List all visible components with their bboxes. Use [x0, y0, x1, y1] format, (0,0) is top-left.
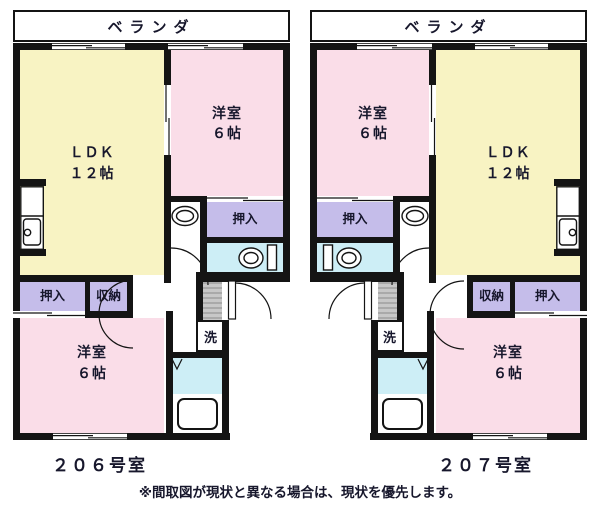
storage-label: 収納 [96, 287, 121, 305]
room-label: 洋室 [77, 342, 107, 362]
toilet-room-207 [317, 243, 393, 272]
room-ldk-206: ＬＤＫ １２帖 [20, 50, 164, 275]
closet-label: 押入 [232, 210, 257, 228]
wall [397, 282, 404, 322]
wall [13, 43, 290, 50]
room-bedroom-top-207: 洋室 ６帖 [317, 50, 429, 196]
room-size-label: ６帖 [358, 123, 388, 143]
wall [310, 272, 404, 282]
closet-shuno-206: 収納 [90, 282, 127, 311]
wall [13, 433, 230, 440]
washroom-206 [171, 202, 200, 283]
wall [554, 249, 580, 256]
room-size-label: ６帖 [212, 123, 242, 143]
wall [85, 311, 133, 318]
room-label: ＬＤＫ [70, 142, 115, 162]
wall [283, 43, 290, 282]
room-label: 洋室 [493, 342, 523, 362]
entrance-door [229, 281, 372, 319]
wall [85, 282, 90, 311]
closet-oshiire-bottom-206: 押入 [20, 282, 85, 311]
laundry-box-207: 洗 [375, 320, 404, 352]
disclaimer-caption: ※間取図が現状と異なる場合は、現状を優先します。 [0, 481, 600, 501]
wall [429, 50, 436, 85]
unit-label-207: ２０７号室 [438, 451, 533, 476]
laundry-label: 洗 [383, 327, 396, 346]
wall [20, 249, 46, 256]
wall [310, 43, 317, 282]
bathtub-icon [177, 398, 218, 430]
toilet-room-206 [207, 243, 283, 272]
wall [13, 43, 20, 440]
laundry-box-206: 洗 [196, 320, 225, 352]
storage-label: 収納 [479, 287, 504, 305]
wall [580, 43, 587, 440]
floor-plan: ベランダ ＬＤＫ １２帖 洋室 ６帖 押入 押入 収納 洋室 ６帖 洗 [0, 0, 600, 506]
genkan-207 [378, 282, 397, 320]
genkan-206 [203, 282, 222, 320]
room-bedroom-bottom-206: 洋室 ６帖 [20, 318, 164, 433]
closet-label: 押入 [342, 210, 367, 228]
laundry-label: 洗 [204, 327, 217, 346]
closet-label: 押入 [40, 287, 65, 305]
closet-oshiire-top-206: 押入 [207, 202, 283, 237]
room-size-label: ６帖 [77, 363, 107, 383]
wall [467, 311, 515, 318]
wall [166, 311, 173, 440]
wall [370, 433, 587, 440]
closet-label: 押入 [535, 287, 560, 305]
room-ldk-207: ＬＤＫ １２帖 [436, 50, 580, 275]
room-size-label: １２帖 [486, 163, 531, 183]
wall [196, 282, 203, 322]
wall [200, 237, 290, 243]
washroom-207 [400, 202, 429, 283]
wall [429, 155, 436, 283]
bathtub-icon [382, 398, 423, 430]
wall [20, 179, 46, 186]
wall [427, 311, 434, 440]
bathroom-wet-206 [173, 358, 222, 394]
veranda-label: ベランダ [107, 16, 195, 37]
wall [467, 275, 587, 282]
wall [371, 320, 378, 440]
closet-oshiire-top-207: 押入 [317, 202, 393, 237]
room-label: 洋室 [358, 103, 388, 123]
room-size-label: １２帖 [70, 163, 115, 183]
wall [13, 275, 133, 282]
wall [222, 320, 229, 440]
wall [510, 282, 515, 311]
wall [371, 352, 434, 358]
wall [310, 237, 400, 243]
wall [554, 179, 580, 186]
closet-shuno-207: 収納 [473, 282, 510, 311]
room-size-label: ６帖 [493, 363, 523, 383]
wall [310, 43, 587, 50]
closet-oshiire-bottom-207: 押入 [515, 282, 580, 311]
room-bedroom-top-206: 洋室 ６帖 [171, 50, 283, 196]
room-label: 洋室 [212, 103, 242, 123]
bathroom-wet-207 [378, 358, 427, 394]
room-label: ＬＤＫ [486, 142, 531, 162]
wall [164, 155, 171, 283]
veranda-206: ベランダ [13, 10, 290, 42]
wall [166, 352, 229, 358]
room-bedroom-bottom-207: 洋室 ６帖 [436, 318, 580, 433]
unit-label-206: ２０６号室 [52, 451, 147, 476]
veranda-207: ベランダ [310, 10, 587, 42]
wall [196, 272, 290, 282]
veranda-label: ベランダ [404, 16, 492, 37]
wall [164, 50, 171, 85]
